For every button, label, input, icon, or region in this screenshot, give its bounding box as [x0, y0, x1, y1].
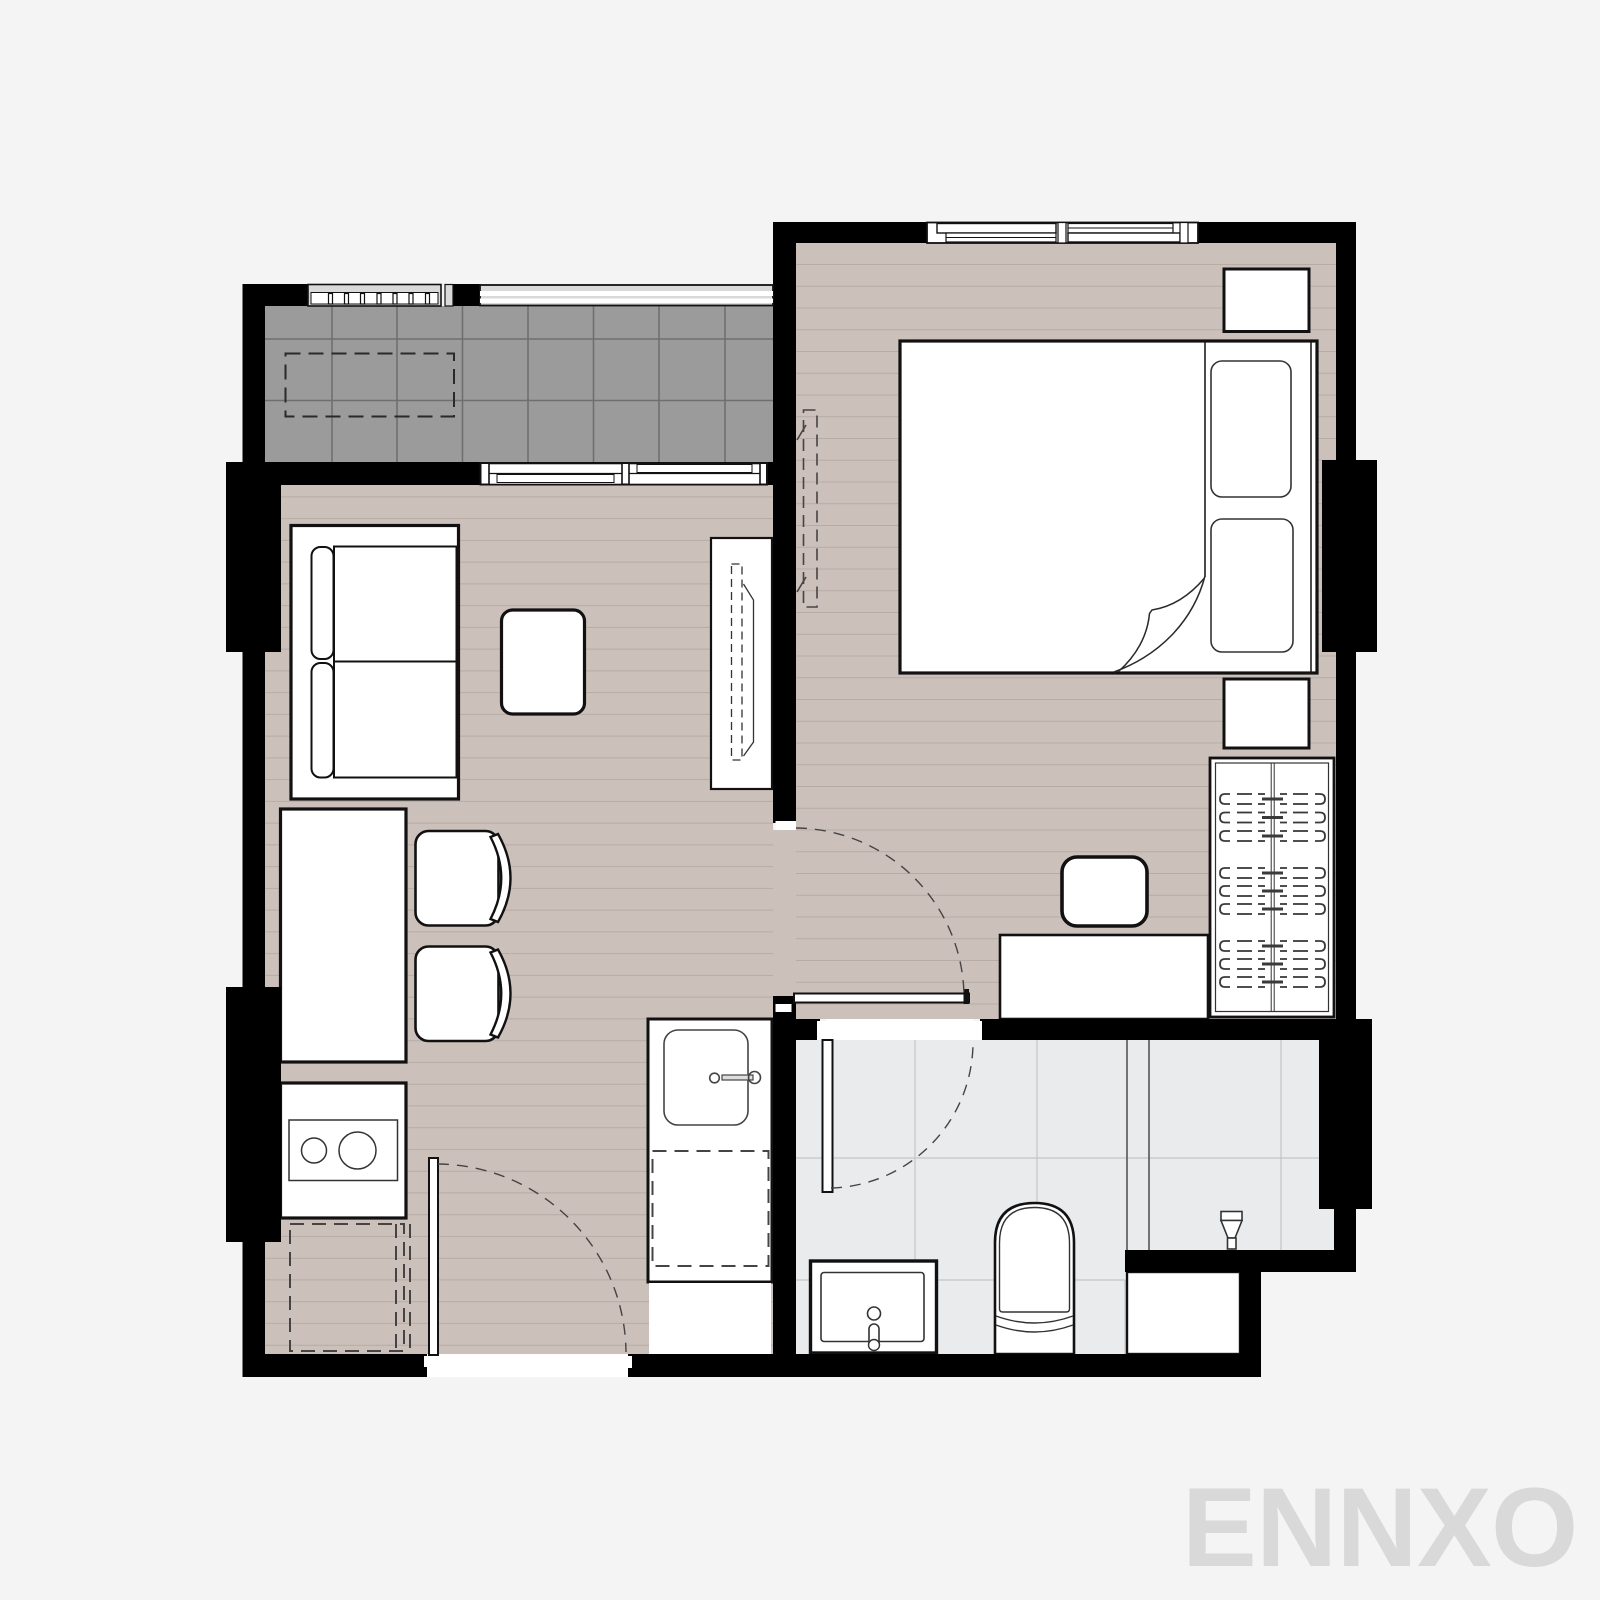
svg-text:ENNXO: ENNXO	[1182, 1465, 1578, 1590]
